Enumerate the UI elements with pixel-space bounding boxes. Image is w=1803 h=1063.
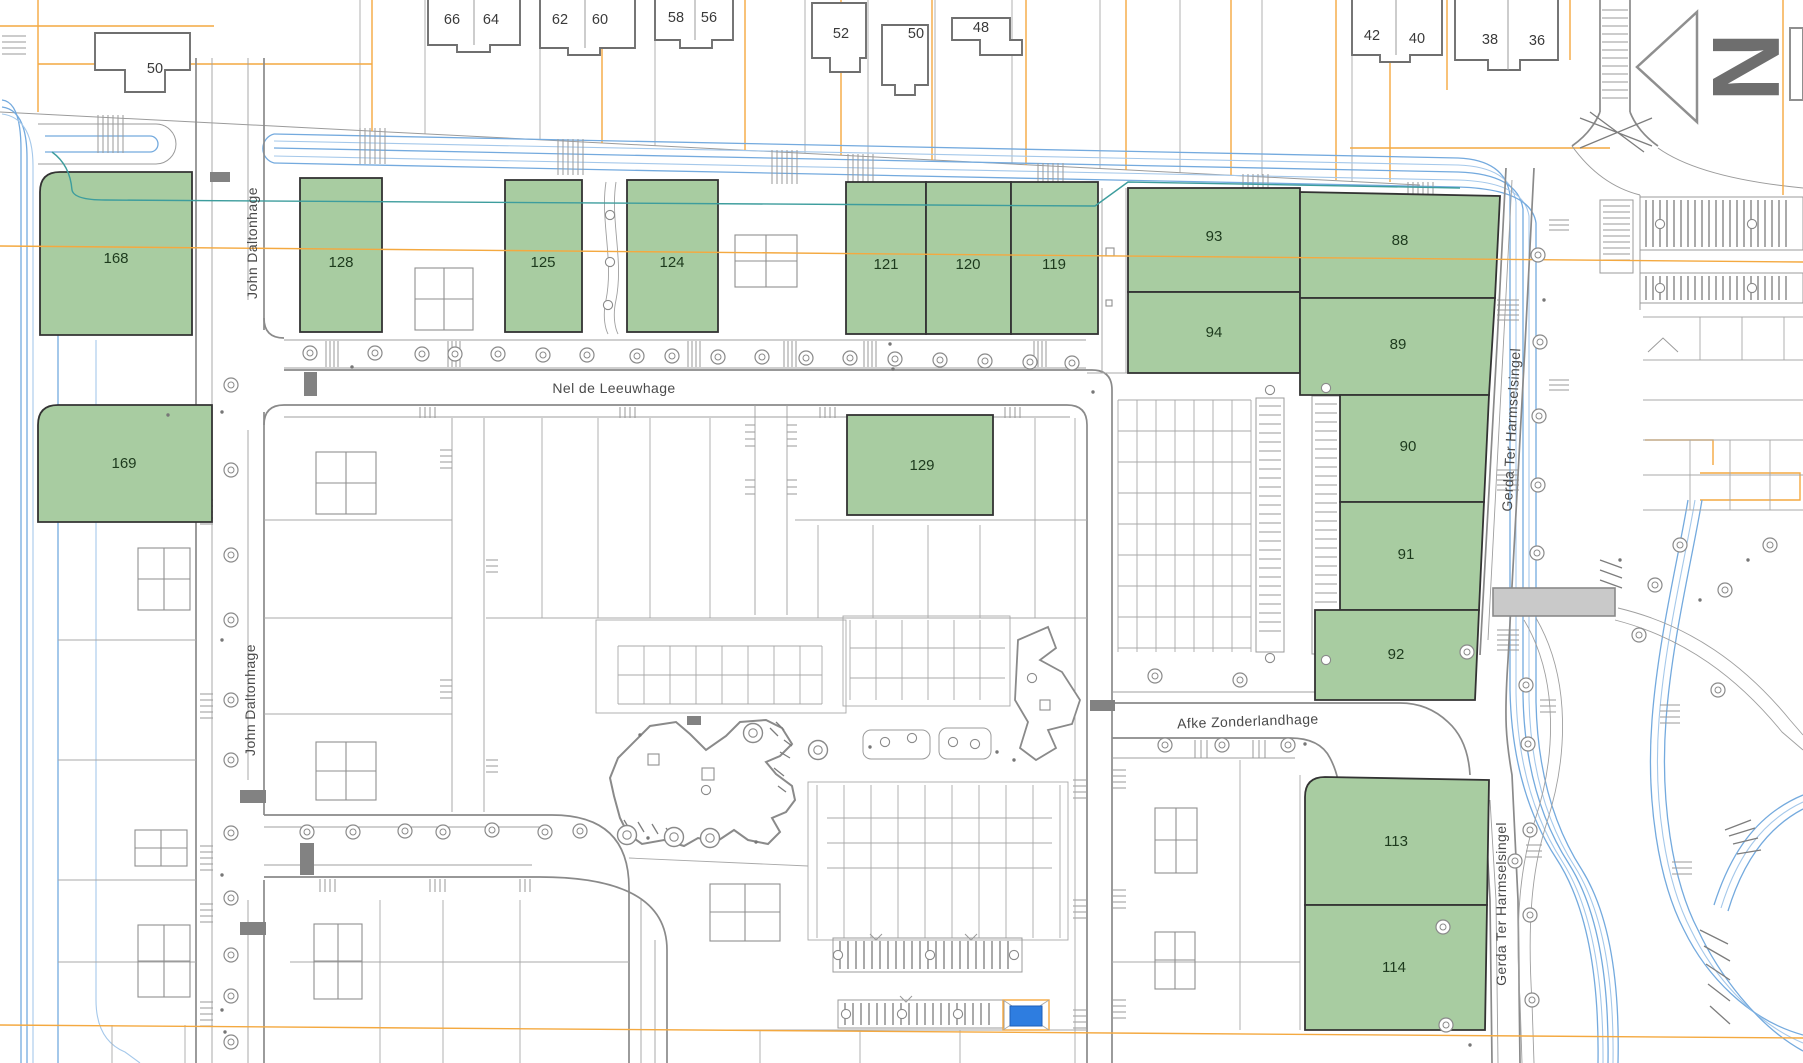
parcel-168-label: 168	[103, 250, 128, 267]
street-label-gerda-ter-harmselsingel-1: Gerda Ter Harmselsingel	[1499, 348, 1524, 512]
street-label-john-daltonhage-2: John Daltonhage	[242, 644, 258, 756]
plot-map: N 168 128 125 124 121 120 119 93 94 88 8…	[0, 0, 1803, 1063]
ramp-hatch	[1600, 200, 1633, 273]
parcel-91-label: 91	[1398, 546, 1415, 563]
house-number-50-mid: 50	[908, 26, 924, 42]
house-number-36: 36	[1529, 33, 1545, 49]
parcel-114-label: 114	[1382, 959, 1406, 976]
parcel-120-label: 120	[955, 256, 980, 273]
garage-row-bottom-2	[838, 996, 1004, 1028]
house-number-58: 58	[668, 10, 684, 26]
parcel-113-label: 113	[1384, 833, 1408, 850]
house-number-66: 66	[444, 12, 460, 28]
north-arrow: N	[1637, 12, 1803, 122]
house-number-50-left: 50	[147, 61, 163, 77]
north-bridge-road	[1572, 0, 1658, 195]
house-number-42: 42	[1364, 28, 1380, 44]
parcel-125-label: 125	[530, 254, 555, 271]
house-number-56: 56	[701, 10, 717, 26]
house-number-40: 40	[1409, 31, 1425, 47]
parcel-128-label: 128	[328, 254, 353, 271]
house-block-66-64	[428, 0, 520, 52]
parcel-89-label: 89	[1390, 336, 1407, 353]
street-label-john-daltonhage-1: John Daltonhage	[244, 187, 260, 299]
map-canvas: N 168 128 125 124 121 120 119 93 94 88 8…	[0, 0, 1803, 1063]
house-number-52: 52	[833, 26, 849, 42]
house-50-left	[95, 33, 190, 92]
house-number-60: 60	[592, 12, 608, 28]
available-parcels: 168 128 125 124 121 120 119 93 94 88 89 …	[38, 172, 1500, 1030]
house-block-58-56	[655, 0, 733, 48]
parcel-169-label: 169	[111, 455, 136, 472]
parcel-94-label: 94	[1206, 324, 1223, 341]
parcel-119-label: 119	[1042, 256, 1066, 273]
street-label-nel-de-leeuwhage: Nel de Leeuwhage	[552, 380, 675, 396]
parcel-92-label: 92	[1388, 646, 1405, 663]
parcel-88-label: 88	[1392, 232, 1409, 249]
parcel-124-label: 124	[659, 254, 684, 271]
house-number-48: 48	[973, 20, 989, 36]
street-label-gerda-ter-harmselsingel-2: Gerda Ter Harmselsingel	[1493, 822, 1509, 986]
street-label-afke-zonderlandhage: Afke Zonderlandhage	[1177, 711, 1319, 732]
existing-houses	[95, 0, 1558, 95]
bridge	[1493, 588, 1615, 616]
green-space-shape	[1015, 627, 1080, 760]
parcel-129-label: 129	[909, 457, 934, 474]
house-number-38: 38	[1482, 32, 1498, 48]
playground	[610, 716, 795, 846]
parcel-90-label: 90	[1400, 438, 1417, 455]
utility-box	[1003, 1000, 1049, 1030]
north-arrow-label: N	[1692, 32, 1799, 101]
house-number-62: 62	[552, 12, 568, 28]
house-number-64: 64	[483, 12, 499, 28]
parcel-121-label: 121	[873, 256, 898, 273]
parcel-93-label: 93	[1206, 228, 1223, 245]
